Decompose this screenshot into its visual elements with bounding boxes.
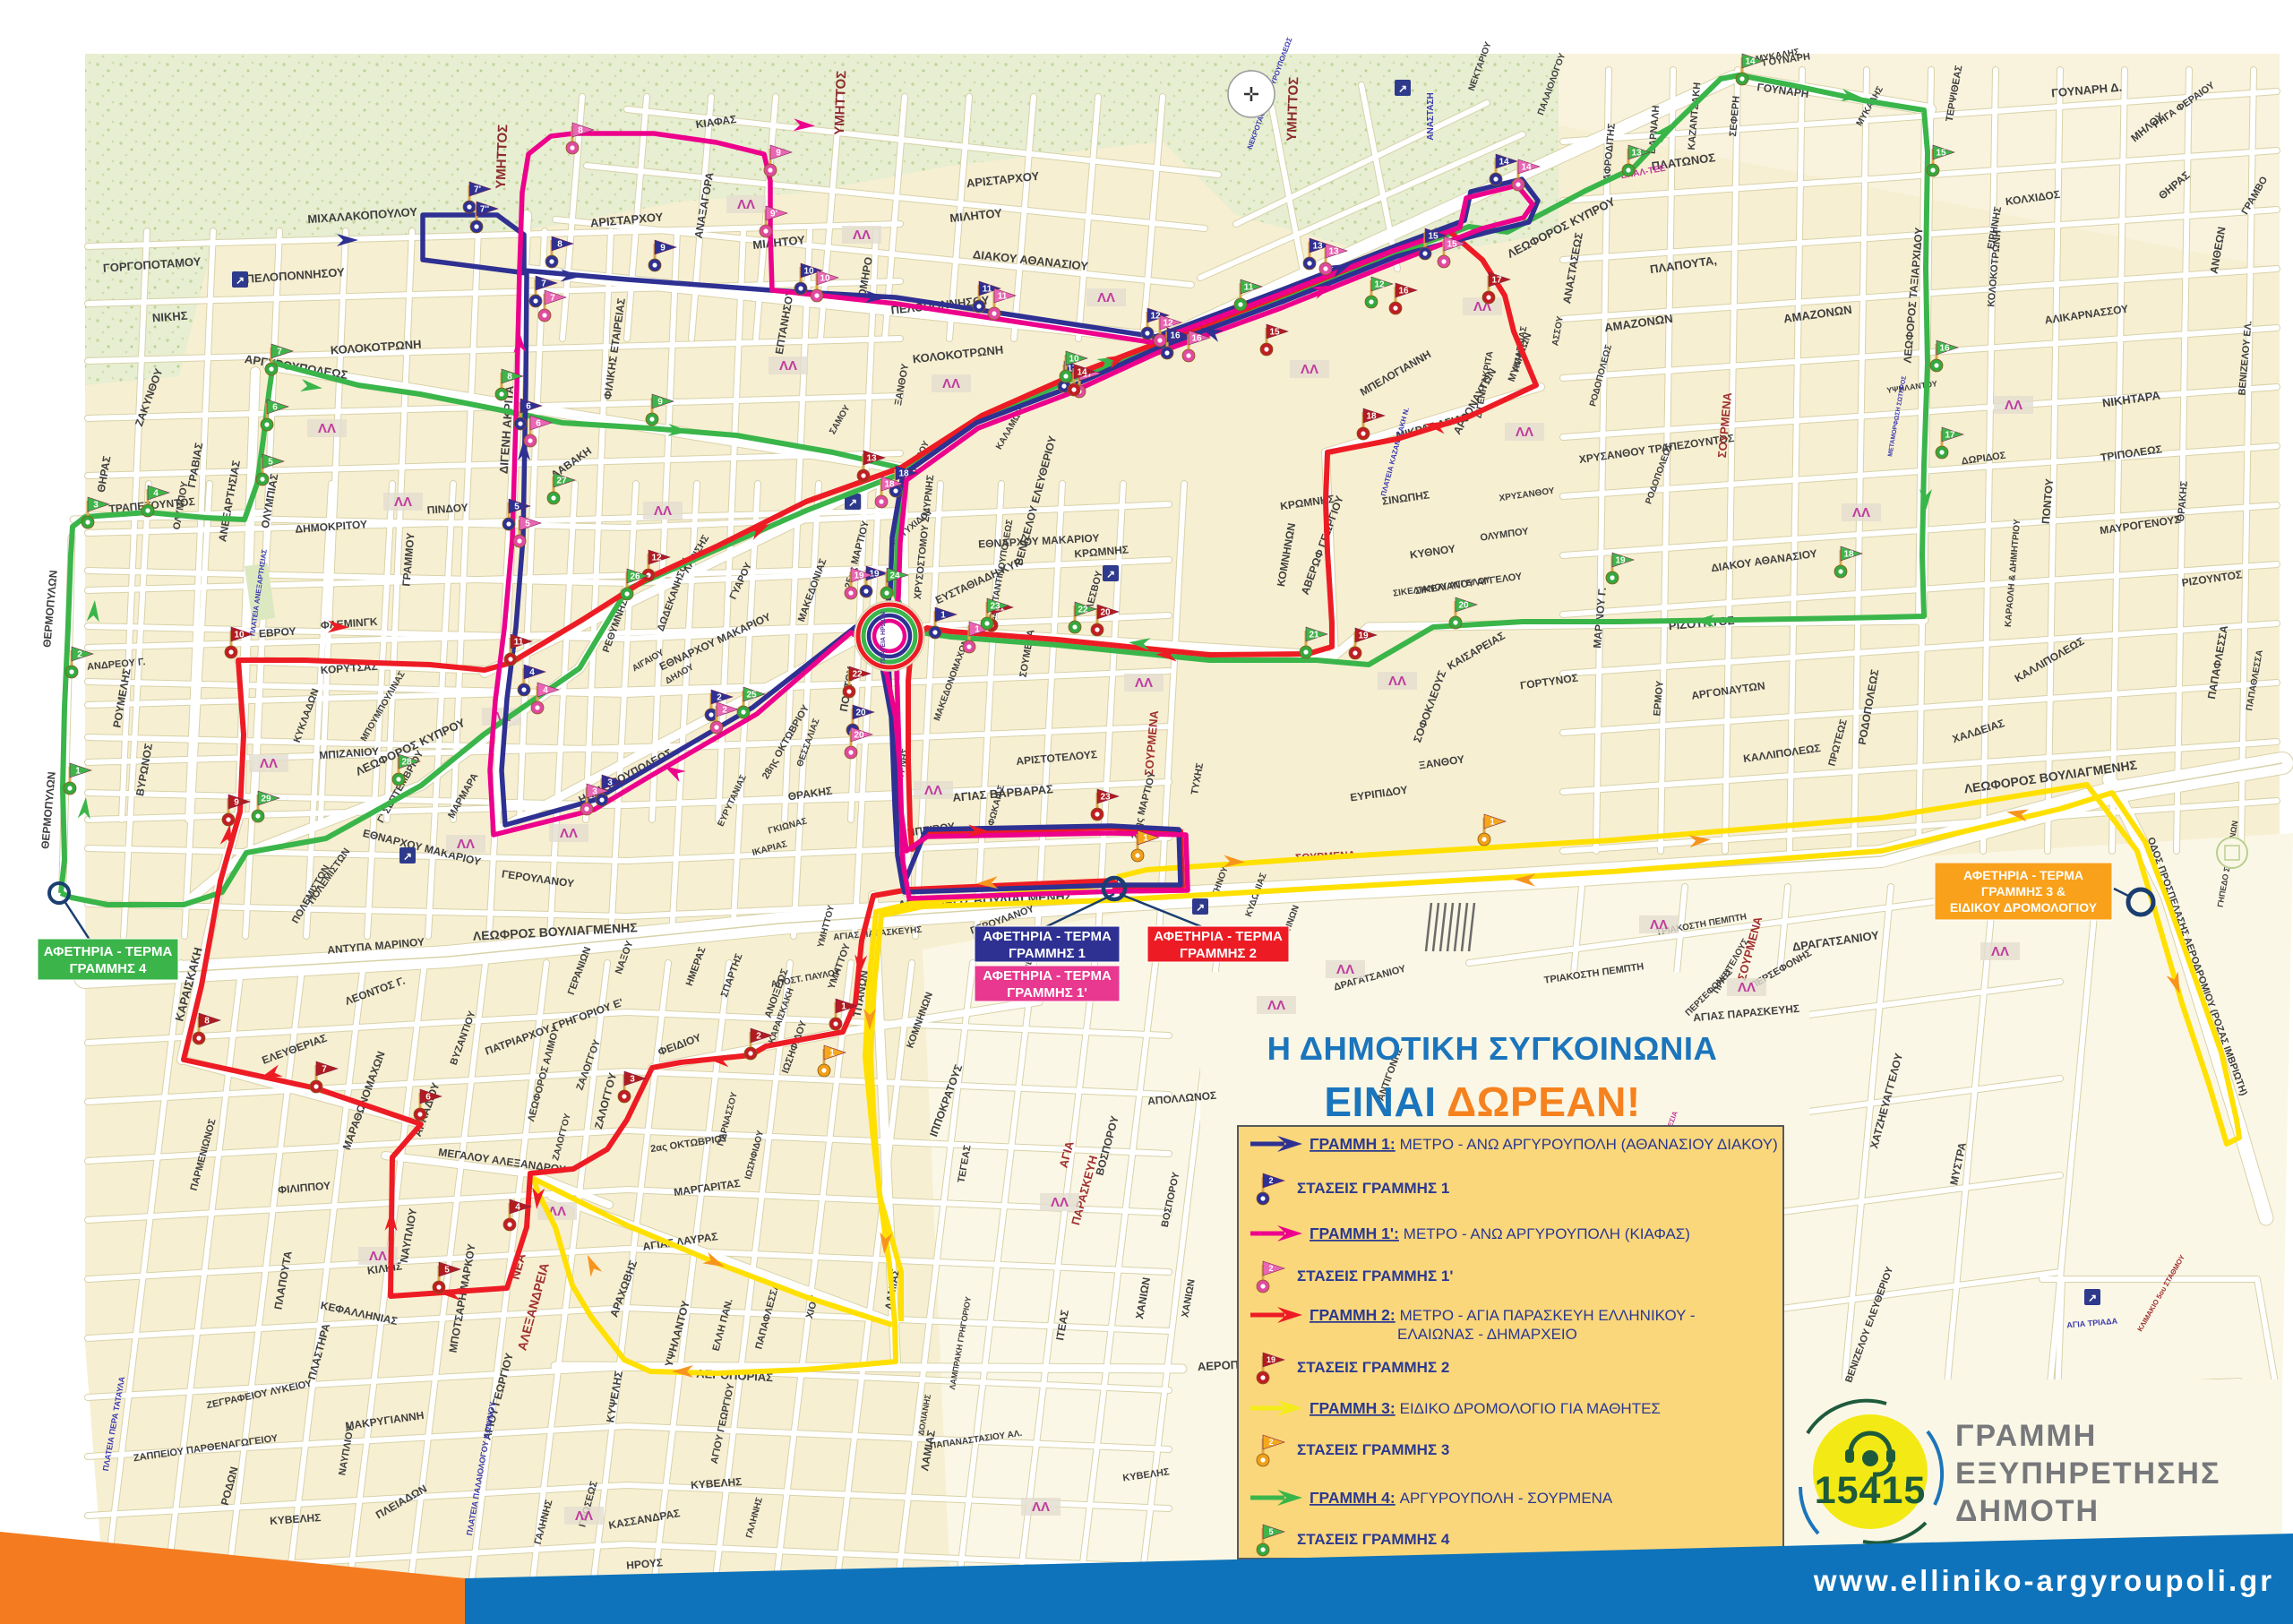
svg-text:14: 14	[1521, 163, 1532, 173]
svg-text:ΓΡΑΜΜΗ 4: ΑΡΓΥΡΟΥΠΟΛΗ - ΣΟΥΡΜΕ: ΓΡΑΜΜΗ 4: ΑΡΓΥΡΟΥΠΟΛΗ - ΣΟΥΡΜΕΝΑ	[1310, 1489, 1613, 1507]
svg-text:9: 9	[234, 798, 239, 808]
svg-text:3: 3	[630, 1075, 635, 1085]
svg-text:7: 7	[322, 1065, 327, 1075]
svg-text:5: 5	[525, 520, 530, 529]
svg-text:18: 18	[884, 480, 895, 490]
svg-text:5: 5	[268, 458, 273, 468]
svg-text:ΛΛ: ΛΛ	[1650, 917, 1668, 932]
svg-text:15: 15	[1428, 232, 1438, 242]
svg-text:ΑΦΕΤΗΡΙΑ - ΤΕΡΜΑ: ΑΦΕΤΗΡΙΑ - ΤΕΡΜΑ	[1154, 929, 1283, 944]
svg-text:2: 2	[1268, 1438, 1273, 1447]
svg-text:ΓΡΑΜΜΗ 2: ΜΕΤΡΟ - ΑΓΙΑ ΠΑΡΑΣΚΕ: ΓΡΑΜΜΗ 2: ΜΕΤΡΟ - ΑΓΙΑ ΠΑΡΑΣΚΕΥΗ ΕΛΛΗΝΙΚ…	[1310, 1306, 1696, 1324]
svg-text:17: 17	[1945, 431, 1955, 441]
svg-text:6: 6	[425, 1093, 431, 1103]
svg-text:ΛΛ: ΛΛ	[1852, 505, 1870, 520]
svg-text:ΓΡΑΜΜΗΣ 3 &: ΓΡΑΜΜΗΣ 3 &	[1981, 884, 2065, 898]
svg-text:4: 4	[515, 1203, 520, 1213]
svg-text:7: 7	[277, 348, 282, 357]
svg-text:ΛΛ: ΛΛ	[457, 837, 475, 852]
svg-text:ΑΦΕΤΗΡΙΑ - ΤΕΡΜΑ: ΑΦΕΤΗΡΙΑ - ΤΕΡΜΑ	[983, 929, 1112, 944]
svg-text:Η ΔΗΜΟΤΙΚΗ ΣΥΓΚΟΙΝΩΝΙΑ: Η ΔΗΜΟΤΙΚΗ ΣΥΓΚΟΙΝΩΝΙΑ	[1267, 1030, 1718, 1067]
svg-text:16: 16	[1170, 331, 1181, 341]
svg-text:11: 11	[983, 285, 992, 295]
svg-text:ΕΙΔΙΚΟΥ ΔΡΟΜΟΛΟΓΙΟΥ: ΕΙΔΙΚΟΥ ΔΡΟΜΟΛΟΓΙΟΥ	[1950, 900, 2098, 915]
svg-text:6: 6	[536, 419, 541, 429]
svg-text:ΑΝΑΣΤΑΣΗ: ΑΝΑΣΤΑΣΗ	[1426, 92, 1436, 140]
svg-text:ΛΛ: ΛΛ	[1336, 962, 1354, 977]
svg-text:ΓΡΑΜΜΗ 1: ΜΕΤΡΟ - ΑΝΩ ΑΡΓΥΡΟΥΠ: ΓΡΑΜΜΗ 1: ΜΕΤΡΟ - ΑΝΩ ΑΡΓΥΡΟΥΠΟΛΗ (ΑΘΑΝΑ…	[1310, 1135, 1778, 1153]
svg-text:13: 13	[1328, 247, 1339, 257]
svg-text:16: 16	[1398, 287, 1409, 296]
svg-text:3: 3	[93, 501, 99, 511]
svg-text:7'': 7''	[480, 205, 489, 215]
svg-text:ΓΡΑΜΜΗΣ 1': ΓΡΑΜΜΗΣ 1'	[1007, 985, 1087, 1001]
svg-text:↗: ↗	[1196, 901, 1205, 914]
svg-text:8: 8	[204, 1017, 210, 1027]
svg-text:13: 13	[866, 454, 877, 464]
svg-text:5: 5	[514, 503, 520, 512]
svg-text:ΕΞΥΠΗΡΕΤΗΣΗΣ: ΕΞΥΠΗΡΕΤΗΣΗΣ	[1955, 1456, 2220, 1491]
svg-text:ΠΛΑΤΕΙΑ ΗΡΩΩΝ: ΠΛΑΤΕΙΑ ΗΡΩΩΝ	[880, 612, 887, 664]
svg-text:7: 7	[541, 279, 546, 289]
svg-text:6: 6	[272, 403, 278, 413]
svg-text:ΣΤΑΣΕΙΣ ΓΡΑΜΜΗΣ 3: ΣΤΑΣΕΙΣ ΓΡΑΜΜΗΣ 3	[1297, 1441, 1449, 1458]
svg-text:ΕΙΝΑΙ ΔΩΡΕΑΝ!: ΕΙΝΑΙ ΔΩΡΕΑΝ!	[1324, 1078, 1640, 1125]
svg-text:15: 15	[1447, 240, 1457, 250]
svg-text:19: 19	[1615, 556, 1626, 566]
svg-text:ΓΡΑΜΜΗ 3: ΕΙΔΙΚΟ ΔΡΟΜΟΛΟΓΙΟ ΓΙ: ΓΡΑΜΜΗ 3: ΕΙΔΙΚΟ ΔΡΟΜΟΛΟΓΙΟ ΓΙΑ ΜΑΘΗΤΕΣ	[1310, 1399, 1661, 1417]
svg-text:25: 25	[746, 691, 757, 700]
svg-text:ΥΜΗΤΤΟΣ: ΥΜΗΤΤΟΣ	[494, 125, 511, 190]
svg-text:ΛΛ: ΛΛ	[394, 494, 412, 510]
svg-text:ΕΒΡΟΥ: ΕΒΡΟΥ	[258, 625, 296, 640]
svg-text:↗: ↗	[848, 496, 857, 509]
svg-text:1: 1	[1143, 834, 1148, 844]
svg-text:ΛΛ: ΛΛ	[1097, 290, 1115, 305]
svg-text:ΥΜΗΤΤΟΣ: ΥΜΗΤΤΟΣ	[1284, 77, 1302, 142]
svg-text:ΝΙΚΗΣ: ΝΙΚΗΣ	[151, 309, 188, 325]
svg-text:2: 2	[1268, 1264, 1273, 1273]
svg-text:ΛΛ: ΛΛ	[1738, 980, 1756, 995]
svg-text:8: 8	[507, 373, 512, 382]
svg-text:23: 23	[1100, 793, 1111, 803]
svg-text:ΓΡΑΜΜΗ: ΓΡΑΜΜΗ	[1955, 1419, 2097, 1453]
svg-text:↗: ↗	[236, 274, 245, 287]
svg-text:ΓΡΑΜΜΗΣ 4: ΓΡΑΜΜΗΣ 4	[69, 961, 147, 976]
svg-text:4: 4	[153, 489, 159, 499]
svg-text:ΣΤΑΣΕΙΣ ΓΡΑΜΜΗΣ 1: ΣΤΑΣΕΙΣ ΓΡΑΜΜΗΣ 1	[1297, 1180, 1449, 1197]
svg-text:www.elliniko-argyroupoli.gr: www.elliniko-argyroupoli.gr	[1813, 1564, 2274, 1597]
svg-text:12: 12	[1374, 280, 1385, 290]
svg-text:16: 16	[1939, 344, 1950, 354]
svg-text:14: 14	[1499, 158, 1509, 168]
svg-text:11: 11	[1244, 283, 1254, 293]
svg-text:3: 3	[592, 787, 597, 797]
svg-text:20: 20	[855, 709, 866, 718]
svg-text:ΛΛ: ΛΛ	[1051, 1195, 1069, 1210]
svg-text:ΛΛ: ΛΛ	[779, 358, 797, 374]
svg-text:22: 22	[852, 670, 863, 680]
svg-text:ΛΛ: ΛΛ	[1135, 675, 1153, 691]
svg-text:24: 24	[889, 571, 900, 581]
svg-text:14: 14	[1745, 57, 1756, 67]
svg-text:19: 19	[854, 571, 864, 581]
svg-text:ΓΡΑΜΜΗΣ 2: ΓΡΑΜΜΗΣ 2	[1180, 946, 1257, 961]
svg-text:5: 5	[1268, 1527, 1273, 1536]
svg-text:18: 18	[1843, 550, 1854, 560]
svg-text:15415: 15415	[1815, 1469, 1927, 1512]
svg-text:10: 10	[820, 274, 830, 284]
svg-text:9: 9	[776, 149, 781, 159]
svg-text:↗: ↗	[2088, 1292, 2097, 1304]
svg-text:ΔΗΜΟΤΗ: ΔΗΜΟΤΗ	[1955, 1494, 2100, 1528]
svg-text:26: 26	[630, 572, 640, 582]
svg-text:7: 7	[550, 294, 555, 304]
svg-text:10: 10	[234, 631, 245, 640]
svg-text:11: 11	[514, 638, 524, 648]
svg-text:ΑΦΕΤΗΡΙΑ - ΤΕΡΜΑ: ΑΦΕΤΗΡΙΑ - ΤΕΡΜΑ	[983, 968, 1112, 984]
svg-text:20: 20	[1100, 608, 1111, 618]
svg-text:13: 13	[1631, 149, 1642, 159]
svg-text:17: 17	[1491, 276, 1502, 286]
svg-text:1: 1	[841, 1002, 846, 1012]
svg-text:✛: ✛	[1243, 83, 1259, 106]
svg-text:ΛΛ: ΛΛ	[1388, 674, 1406, 689]
svg-text:ΛΛ: ΛΛ	[1032, 1499, 1050, 1515]
svg-text:14: 14	[1077, 368, 1087, 378]
svg-text:9: 9	[657, 398, 663, 408]
svg-text:19: 19	[1358, 632, 1369, 641]
svg-text:2: 2	[1268, 1176, 1273, 1185]
svg-text:ΛΛ: ΛΛ	[924, 783, 942, 798]
svg-text:2: 2	[77, 650, 82, 660]
svg-text:ΣΤΑΣΕΙΣ ΓΡΑΜΜΗΣ 2: ΣΤΑΣΕΙΣ ΓΡΑΜΜΗΣ 2	[1297, 1359, 1449, 1376]
svg-text:2: 2	[717, 693, 722, 703]
svg-text:ΛΛ: ΛΛ	[560, 826, 578, 841]
svg-text:20: 20	[854, 731, 864, 741]
svg-text:9': 9'	[770, 210, 777, 219]
svg-text:19: 19	[1267, 1355, 1275, 1364]
svg-text:ΓΡΑΜΜΗΣ 1: ΓΡΑΜΜΗΣ 1	[1009, 946, 1086, 961]
svg-text:9: 9	[660, 244, 666, 253]
svg-text:22: 22	[1078, 606, 1088, 615]
svg-text:1: 1	[940, 611, 946, 621]
svg-text:10: 10	[1069, 355, 1079, 365]
svg-text:ΑΦΕΤΗΡΙΑ - ΤΕΡΜΑ: ΑΦΕΤΗΡΙΑ - ΤΕΡΜΑ	[44, 944, 173, 959]
svg-text:16: 16	[1191, 334, 1202, 344]
svg-text:ΛΛ: ΛΛ	[260, 756, 278, 771]
svg-text:1: 1	[975, 625, 980, 635]
svg-text:ΛΛ: ΛΛ	[737, 197, 755, 212]
svg-text:8: 8	[557, 240, 563, 250]
svg-text:15: 15	[1269, 328, 1280, 338]
svg-text:ΑΦΕΤΗΡΙΑ - ΤΕΡΜΑ: ΑΦΕΤΗΡΙΑ - ΤΕΡΜΑ	[1963, 868, 2083, 882]
svg-text:4: 4	[543, 686, 548, 696]
svg-text:10: 10	[803, 267, 814, 277]
svg-text:20: 20	[1458, 601, 1469, 611]
svg-text:2: 2	[756, 1032, 761, 1042]
svg-text:28: 28	[401, 758, 412, 768]
svg-text:18: 18	[898, 469, 909, 479]
svg-text:ΛΛ: ΛΛ	[1301, 362, 1318, 377]
svg-text:ΛΛ: ΛΛ	[654, 503, 672, 519]
svg-text:ΓΡΑΜΜΗ 1': ΜΕΤΡΟ - ΑΝΩ ΑΡΓΥΡΟΥ: ΓΡΑΜΜΗ 1': ΜΕΤΡΟ - ΑΝΩ ΑΡΓΥΡΟΥΠΟΛΗ (ΚΙΑΦ…	[1310, 1224, 1690, 1242]
svg-text:ΛΛ: ΛΛ	[1991, 944, 2009, 959]
svg-text:12: 12	[1163, 319, 1173, 329]
svg-text:27: 27	[556, 477, 567, 486]
svg-text:ΛΛ: ΛΛ	[1516, 425, 1533, 440]
svg-text:19: 19	[869, 570, 880, 580]
svg-text:29: 29	[261, 795, 271, 804]
svg-text:↗: ↗	[1106, 568, 1115, 580]
svg-text:13: 13	[1312, 242, 1323, 252]
svg-text:ΛΛ: ΛΛ	[2005, 398, 2022, 413]
svg-text:5: 5	[444, 1266, 450, 1276]
svg-text:15: 15	[1936, 149, 1946, 159]
svg-text:8: 8	[578, 126, 583, 136]
svg-text:4: 4	[529, 668, 535, 678]
svg-text:ΛΛ: ΛΛ	[318, 421, 336, 436]
svg-text:1: 1	[829, 1049, 835, 1059]
svg-text:2: 2	[722, 706, 727, 716]
svg-text:18: 18	[1366, 412, 1377, 422]
svg-text:6: 6	[526, 402, 531, 412]
svg-text:3: 3	[607, 778, 613, 788]
svg-text:ΛΛ: ΛΛ	[1267, 998, 1285, 1013]
svg-text:1: 1	[75, 767, 81, 777]
svg-text:ΛΛ: ΛΛ	[369, 1249, 387, 1264]
svg-text:ΛΛ: ΛΛ	[942, 376, 960, 391]
svg-text:ΥΜΗΤΤΟΣ: ΥΜΗΤΤΟΣ	[832, 71, 850, 136]
svg-text:12: 12	[651, 554, 662, 563]
svg-text:11: 11	[998, 292, 1008, 302]
svg-text:↗: ↗	[1398, 82, 1407, 95]
svg-text:7': 7'	[474, 185, 481, 195]
svg-text:ΣΤΑΣΕΙΣ ΓΡΑΜΜΗΣ 4: ΣΤΑΣΕΙΣ ΓΡΑΜΜΗΣ 4	[1297, 1531, 1450, 1548]
svg-text:↗: ↗	[403, 850, 412, 863]
svg-text:ΕΛΑΙΩΝΑΣ - ΔΗΜΑΡΧΕΙΟ: ΕΛΑΙΩΝΑΣ - ΔΗΜΑΡΧΕΙΟ	[1397, 1326, 1577, 1343]
svg-text:ΛΛ: ΛΛ	[575, 1508, 593, 1524]
svg-text:ΛΛ: ΛΛ	[853, 228, 871, 243]
svg-text:21: 21	[1309, 631, 1319, 640]
svg-text:1: 1	[1490, 818, 1495, 828]
svg-text:ΣΤΑΣΕΙΣ ΓΡΑΜΜΗΣ 1': ΣΤΑΣΕΙΣ ΓΡΑΜΜΗΣ 1'	[1297, 1267, 1453, 1285]
svg-text:23: 23	[990, 602, 1001, 612]
